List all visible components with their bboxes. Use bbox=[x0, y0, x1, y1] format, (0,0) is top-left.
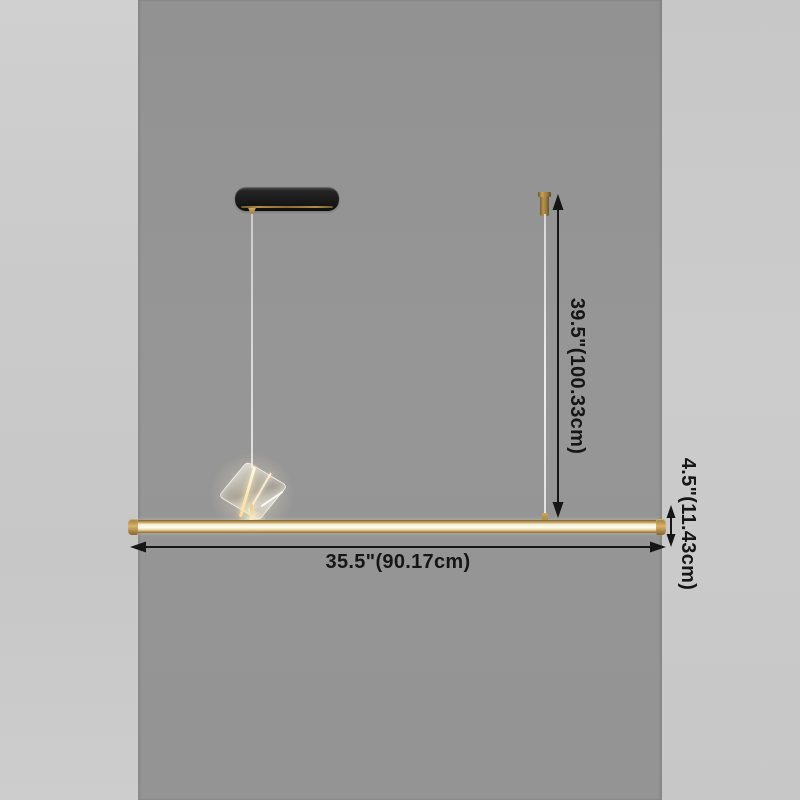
bar-end-cap-right bbox=[656, 519, 666, 535]
ceiling-canopy bbox=[235, 187, 339, 211]
suspension-cord-left bbox=[251, 214, 253, 468]
bar-offset-dimension-label: 4.5"(11.43cm) bbox=[675, 438, 701, 610]
background-right-wall bbox=[662, 0, 800, 800]
linear-light-bar bbox=[131, 520, 663, 533]
ceiling-fitting-right bbox=[538, 192, 551, 216]
bar-width-dimension-label: 35.5"(90.17cm) bbox=[278, 549, 518, 575]
background-left-wall bbox=[0, 0, 138, 800]
product-dimension-diagram: 39.5"(100.33cm) 4.5"(11.43cm) 35.5"(90.1… bbox=[0, 0, 800, 800]
bar-end-cap-left bbox=[128, 519, 138, 535]
drop-height-dimension-label: 39.5"(100.33cm) bbox=[564, 276, 590, 476]
suspension-cord-right bbox=[544, 214, 546, 520]
canopy-gold-trim bbox=[241, 206, 333, 208]
